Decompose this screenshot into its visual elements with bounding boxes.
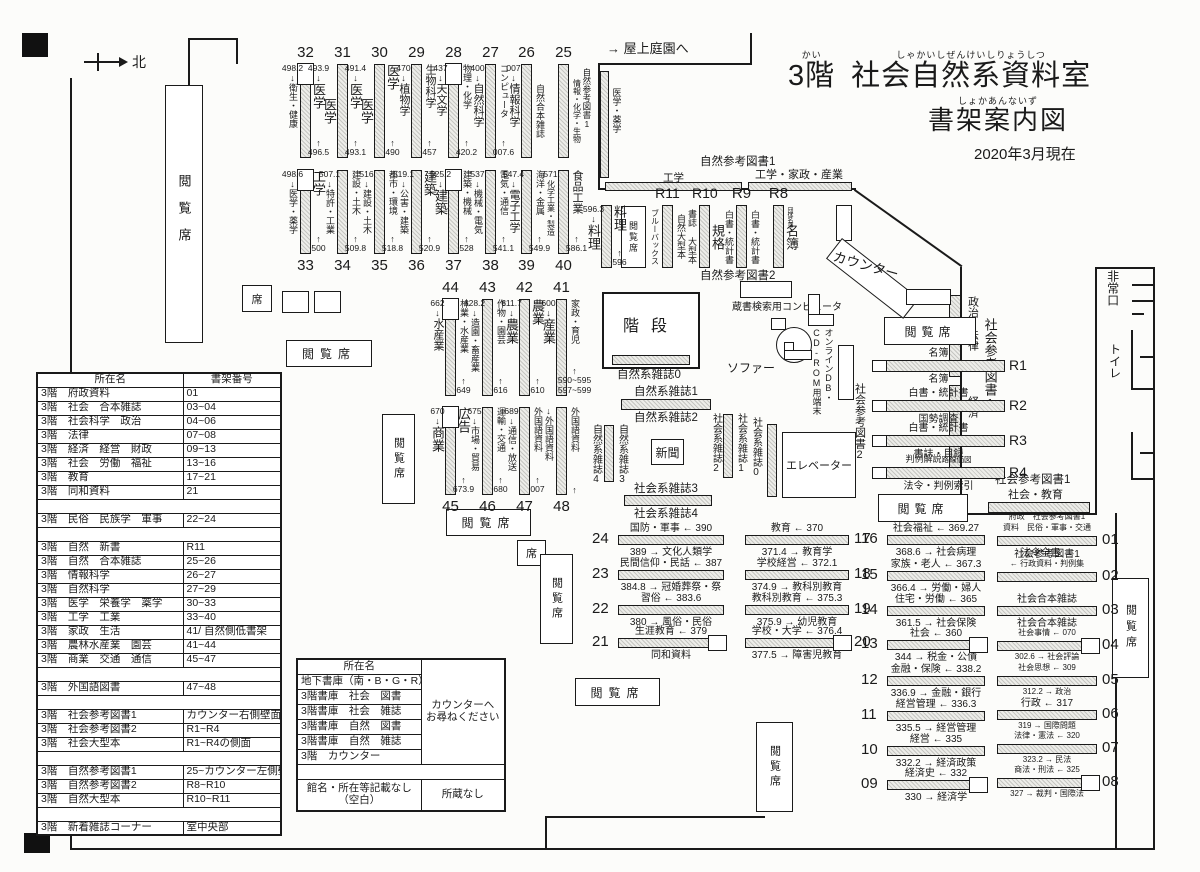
shelf-side-label: 白書・統計書 [722,205,735,268]
shelf-ryori: 596.3↓料理料理↑596 [587,205,626,268]
online-db-label: オンラインDB・ [823,328,832,423]
shelf-label: 368.6 → 社会病理 [877,547,995,558]
table-cell: 17~21 [183,471,281,485]
table-cell: 3階 自然参考図書1 [37,765,183,779]
table-cell: 室中央部 [183,821,281,835]
wall-shelf-section-label: 社会・教育 [1008,489,1063,502]
arrow-icon: ↓ [438,180,443,189]
title-sub: 書架案内図しょかあんないず [928,105,1068,135]
subject-label: 料理 [613,205,626,231]
subject-label: 造園・畜産業 [470,318,479,372]
shelf-label: 習俗 ← 383.6 [608,593,734,604]
list-shelf-06 [997,710,1097,720]
title-name: 社会自然系資料室しゃかいしぜんけいしりょうしつ [851,50,1091,94]
subject-label: 市場・貿易 [470,426,479,471]
table-box [282,291,309,313]
list-shelf-12 [887,676,985,686]
list-shelf-15 [887,571,985,581]
table-cell: 41/ 自然側低書架 [183,625,281,639]
scan-mark [24,833,50,853]
list-shelf-22 [618,605,724,615]
shelf-side-label: 600↓産業 [542,299,555,396]
magazine-shelf-label: 社会系雑誌0 [750,417,761,501]
table-cell: 21 [183,485,281,499]
list-shelf-16 [887,535,985,545]
shelf-number: 31 [330,45,355,60]
arrow-icon: ↓ [472,417,477,426]
shelf-label: 344 → 税金・公債 [877,652,995,663]
wall-shelf-label: 自然参考図書1 [582,68,591,178]
shelf-side-label: 007↓情報科学 [507,64,520,158]
online-db-label: CD-ROM用端末 [811,328,820,423]
ref-shelf-R4 [872,467,1005,479]
reading-seats-label: 閲覧席 [767,745,783,790]
magazine-shelf-label: 社会系雑誌2 [710,413,721,479]
shelf-35: 35516↓建設・土木都市・環境↑518.8 [360,170,399,254]
shelf-label: 路線価図 [942,455,972,464]
online-db-terminal [838,345,854,400]
table-cell: 3階 家政 生活 [37,625,183,639]
shelf-label: 312.2 → 政治 [987,688,1107,697]
shelf-45: 45670↓商業広告↑673.9 [431,407,470,495]
table-cell: R8~R10 [183,779,281,793]
wall-roof-garden [750,33,752,65]
wall-shelf-section-label: 工学 [663,172,684,184]
arrow-icon: ↓ [435,309,440,318]
subject-label: 農業 [505,318,518,344]
counter-side-table [836,205,852,241]
reading-seats-label: 閲覧席 [549,577,565,622]
arrow-icon: ↓ [509,309,514,318]
table-note-line: カウンターへ [431,699,494,711]
shelf-number: 44 [438,280,463,295]
subject-label: 食品工業 [571,170,582,214]
shelf-side-label: 437↓天文学 [434,64,447,158]
shelf-end-panel [969,777,988,793]
table-cell: 3階 医学 栄養学 薬学 [37,597,183,611]
title-name-text: 社会自然系資料室 [851,60,1091,92]
shelf-side-label: 情報・化学・生物 [570,64,583,158]
shelf-side-label: 571化学工業・製造 [544,170,557,254]
shelf-number: 27 [478,45,503,60]
newspaper-box: 新聞 [651,439,684,465]
list-number: 10 [861,742,878,757]
newspaper-label: 新聞 [655,444,679,461]
reading-seats-box: 閲覧席 [1112,578,1149,678]
list-shelf-17 [745,535,849,545]
shelf-number: 48 [549,499,574,514]
reading-seats-label: 閲覧席 [904,323,955,340]
shelf-bar [556,407,567,495]
opac-label: 蔵書検索用コンピュータ [732,302,842,314]
wall-topleft [236,38,238,64]
shelf-label: 教育 ← 370 [735,523,859,534]
list-shelf-19 [745,605,849,615]
shelf-end-panel [1081,775,1100,791]
shelf-R10: R10書誌 大型本規格 [685,205,724,268]
reading-seats-box: 閲覧席 [540,554,573,644]
subject-label: 植物学 [398,83,409,116]
shelf-bar [521,64,532,158]
table-cell: 3階 自然 合本雑誌 [37,555,183,569]
arrow-icon: ↓ [546,407,551,416]
list-shelf-07 [997,744,1097,754]
shelf-number: 32 [293,45,318,60]
shelf-label: 府政 社会参考図書1 [987,513,1107,522]
shelf-label: 327 → 裁判・国際法 [987,790,1107,799]
shelf-label: 323.2 → 民法 [987,756,1107,765]
table-cell: 3階 外国語図書 [37,681,183,695]
shelf-side-label: 医学 [323,64,336,158]
shelf-label: 判例解説路線価図 [872,455,1005,465]
shelf-number: 41 [549,280,574,295]
shelf-side-label: 507.1↓特許・工業 [323,170,336,254]
reading-seats-box: 閲覧席 [884,317,976,345]
arrow-icon: ↓ [290,74,295,83]
list-shelf-11 [887,711,985,721]
wall-corridor [1095,267,1097,515]
floor-map-page: 北 3階かい 社会自然系資料室しゃかいしぜんけいしりょうしつ 書架案内図しょかあ… [0,0,1200,872]
shelf-side-label: 525.2↓建築 [434,170,447,254]
shelf-label: 302.6 → 社会評論 [987,653,1107,662]
title-floor-ruby: かい [788,50,835,60]
shelf-bar [411,64,422,158]
wall-shelf-label: 社会参考図書1 [995,474,1070,487]
shelf-label: 名簿 [872,374,1005,385]
list-number: 01 [1102,532,1119,547]
shelf-number: 37 [441,258,466,273]
table-cell: 41~44 [183,639,281,653]
shelf-label: 金融・保険 ← 338.2 [877,664,995,675]
shelf-30: 30医学医学↑490 [360,64,399,158]
table-cell: 3階 工学 工業 [37,611,183,625]
table-footer: 館名・所在等記載なし（空白） [297,779,421,811]
shelf-number: 29 [404,45,429,60]
table-cell: カウンター右側壁面~02 [183,709,281,723]
elevator-label: エレベーター [786,457,852,473]
shelf-side-label: 596.3↓料理 [587,205,600,268]
magazine-shelf-soc3-4 [624,495,712,506]
shelf-R9: R9白書・統計書白書・統計書 [722,205,761,268]
wall-shelf-nat-ref1-home [748,182,852,191]
table-cell: 33~40 [183,611,281,625]
shelf-bar [374,64,385,158]
shelf-bar [485,170,496,254]
shelf-number: R8 [766,186,791,201]
list-number: 23 [592,566,609,581]
subject-label: 医学 [360,98,373,124]
shelf-label: 商法・刑法 ← 325 [987,766,1107,775]
table-row: 3階書庫 自然 図書 [297,719,421,734]
magazine-shelf-label: 自然系雑誌2 [634,412,698,425]
subject-label: 医学 [323,98,336,124]
shelf-34: 34507.1↓特許・工業建設・土木↑509.8 [323,170,362,254]
table-note: カウンターへお尋ねください [421,659,505,764]
table-header: 所在名 [37,373,183,387]
table-cell: 3階 自然参考図書2 [37,779,183,793]
arrow-icon: ↓ [401,74,406,83]
arrow-icon: ↓ [511,74,516,83]
subject-label: 料理 [587,224,600,250]
shelf-side-label: 498.6↓医学・薬学 [286,170,299,254]
toilet-fixture [1140,356,1153,358]
compass-line [84,61,120,63]
seat-label: 席 [252,291,263,307]
subject-label: 医学・薬学 [288,189,297,234]
list-number: 22 [592,601,609,616]
wall-shelf-label: 社会参考図書2 [853,383,865,487]
shelf-label: 336.9 → 金融・銀行 [877,688,995,699]
wall-shelf-section-label: 医学・薬学 [611,88,620,168]
shelf-label: 学校経営 ← 372.1 [735,558,859,569]
table-gap [37,807,281,821]
toilet-label: トイレ [1108,343,1121,397]
list-number: 06 [1102,706,1119,721]
subject-label: 商業 [431,426,444,452]
shelf-side-label: 家政・育児↑590~595597~599 [568,299,581,396]
reading-seats-box: 閲覧席 [165,85,203,343]
magazine-shelf-label: 社会系雑誌4 [634,508,698,521]
shelf-side-label: 470↓植物学 [397,64,410,158]
opac-desk [740,281,792,298]
list-number: 07 [1102,740,1119,755]
list-number: 16 [861,531,878,546]
shelf-side-label: 675↓市場・貿易 [468,407,481,495]
list-number: 05 [1102,672,1119,687]
shelf-end-panel [969,637,988,653]
roof-garden-label: → 屋上庭園へ [607,42,689,57]
magazine-shelf-nat1-2 [621,399,711,410]
table-cell: 3階 教育 [37,471,183,485]
shelf-number: 46 [475,499,500,514]
arrow-icon: ↓ [438,74,443,83]
list-number: 24 [592,531,609,546]
toilet-fixture [1132,300,1153,302]
wall-corridor [1095,267,1155,269]
shelf-label: 330 → 経済学 [877,792,995,803]
subject-label: ブルーバックス [651,209,659,265]
page-title: 3階かい 社会自然系資料室しゃかいしぜんけいしりょうしつ 書架案内図しょかあんな… [788,50,1192,164]
subject-label: 書誌 大型本 [687,209,696,264]
subject-label: 名簿 [785,224,798,250]
shelf-end-panel [1081,638,1100,654]
table-cell: 3階 情報科学 [37,569,183,583]
table-box [314,291,341,313]
legend-table-main: 所在名 書架番号 3階 府政資料013階 社会 合本雑誌03~043階 社会科学… [36,372,282,836]
compass-label: 北 [132,54,146,70]
subject-label: 自然合本雑誌 [535,84,544,138]
shelf-label: 377.5 → 障害児教育 [735,650,859,661]
shelf-label: 資料 民俗・軍事・交通 [987,524,1107,533]
table-header: 所在名 [297,659,421,674]
shelf-label: 教科別教育 ← 375.3 [735,593,859,604]
shelf-number: 34 [330,258,355,273]
shelf-label: 社会思想 ← 309 [987,664,1107,673]
subject-label: 情報・化学・生物 [573,79,581,143]
shelf-bar [558,170,569,254]
shelf-46: 46675↓市場・貿易運輸・交通↑680 [468,407,507,495]
table-cell: 3階 同和資料 [37,485,183,499]
list-number: 15 [861,567,878,582]
shelf-side-label: 670↓商業 [431,407,444,495]
subject-label: 天文学 [435,83,446,116]
shelf-bar [519,299,530,396]
table-cell: R1~R4 [183,723,281,737]
shelf-label: 家族・老人 ← 367.3 [877,559,995,570]
shelf-29: 29470↓植物学生物科学↑457 [397,64,436,158]
shelf-40: 40571化学工業・製造食品工業↑586.1 [544,170,583,254]
table-cell: 45~47 [183,653,281,667]
wall-topleft [188,38,238,40]
list-number: 02 [1102,568,1119,583]
shelf-label: 住宅・労働 ← 365 [877,594,995,605]
arrow-icon: ↓ [435,417,440,426]
counter-side-table [906,289,951,305]
title-floor-text: 3階 [788,60,835,92]
subject-label: 建築 [434,189,447,215]
arrow-icon: ↓ [327,180,332,189]
ref-shelf-R1 [872,360,1005,372]
subject-label: 機械・電気 [473,189,482,234]
shelf-label: 白書・統計書 [872,423,1005,434]
shelf-44: 44662↓水産業林業・水産業↑649 [431,299,470,396]
shelf-bar [337,64,348,158]
shelf-side-label: 519.1↓公害・建築 [397,170,410,254]
title-sub-ruby: しょかあんないず [928,96,1068,106]
legend-table-counter: 所在名 カウンターへお尋ねください 地下書庫（南・B・G・R） 3階書庫 社会 … [296,658,506,812]
reading-seats-box: 閲覧席 [575,678,660,706]
table-cell: 3階 法律 [37,429,183,443]
table-note-line: お尋ねください [426,711,500,723]
shelf-number: R11 [655,186,680,200]
magazine-shelf-soc1-2 [723,414,733,478]
shelf-side-label: 689↓通信・放送 [505,407,518,495]
arrow-icon: ↑ [572,486,577,495]
table-cell: 3階 社会 合本雑誌 [37,401,183,415]
shelf-side-label: 547.4↓電子工学 [507,170,520,254]
list-number: 12 [861,672,878,687]
subject-label: 外国語資料 [533,407,542,452]
table-row: 3階 カウンター [297,749,421,764]
wall-bottom [70,848,1155,850]
call-number: 571 [543,170,557,180]
shelf-label: 社会合本雑誌 [987,594,1107,605]
shelf-42: 42611.7↓農業農業↑610 [505,299,544,396]
table-cell: 3階 農林水産業 園芸 [37,639,183,653]
wall-shelf-label: 自然参考図書1 [700,156,775,169]
reading-seats-label: 閲覧席 [302,345,356,362]
shelf-side-label: 400↓自然科学 [471,64,484,158]
table-row: 3階書庫 社会 図書 [297,689,421,704]
shelf-number: 25 [551,45,576,60]
wall-shelf-section-label: 工学・家政・産業 [755,169,843,182]
shelf-side-label: 628.2↓造園・畜産業 [468,299,481,396]
wall-roof-garden [598,63,752,65]
ref-shelf-R2 [872,400,1005,412]
table-cell: R1~R4の側面 [183,737,281,751]
magazine-shelf-soc0 [767,424,777,497]
table-cell: 25~カウンター左側壁面 [183,765,281,779]
shelf-bar [773,205,784,268]
table-cell: 47~48 [183,681,281,695]
wall-bottom-center [545,816,547,850]
shelf-label: 白書・統計書 [872,388,1005,399]
table-footer: 所蔵なし [421,779,505,811]
shelf-bar [662,205,673,268]
magazine-shelf-label: 自然系雑誌3 [616,424,627,486]
shelf-38: 38537↓機械・電気電気・通信↑541.1 [471,170,510,254]
reading-seats-label: 閲覧席 [627,221,640,254]
shelf-number: 30 [367,45,392,60]
subject-label: 建設・土木 [362,189,371,234]
table-cell: 3階 社会参考図書1 [37,709,183,723]
toilet-fixture [1131,330,1133,390]
magazine-shelf-label: 自然系雑誌4 [590,424,601,486]
shelf-number: 35 [367,258,392,273]
shelf-25: 25情報・化学・生物 [544,64,583,158]
list-number: 11 [861,707,877,722]
arrow-icon: ↓ [353,74,358,83]
subject-label: 情報科学 [508,83,519,127]
list-shelf-02 [997,572,1097,582]
shelf-26: 26007↓情報科学自然合本雑誌 [507,64,546,158]
table-cell: 04~06 [183,415,281,429]
table-cell: 3階 社会参考図書2 [37,723,183,737]
arrow-icon: ↓ [475,74,480,83]
table-cell: R11 [183,541,281,555]
toilet-fixture [1132,284,1153,286]
shelf-number: R4 [1009,465,1027,479]
table-gap [37,751,281,765]
seat-label: 席 [526,545,537,561]
shelf-bar [519,407,530,495]
toilet-fixture [1131,432,1133,480]
subject-label: 水産業 [432,318,443,351]
reading-seats-label: 閲覧席 [461,514,515,531]
list-shelf-10 [887,746,985,756]
subject-label: 公害・建築 [399,189,408,234]
table-cell: 30~33 [183,597,281,611]
list-shelf-05 [997,676,1097,686]
shelf-27: 27400↓自然科学コンピュータ↑007.6 [471,64,510,158]
subject-label: 特許・工業 [325,189,334,234]
shelf-label: 国防・軍事 ← 390 [608,523,734,534]
arrow-icon: ↓ [290,180,295,189]
scan-mark [22,33,48,57]
list-shelf-14 [887,606,985,616]
shelf-label: 319 → 国際問題 [987,722,1107,731]
reading-seats-label: 閲覧席 [1123,604,1139,652]
shelf-side-label: 611.7↓農業 [505,299,518,396]
table-row: 3階書庫 自然 雑誌 [297,734,421,749]
table-cell: 3階 商業 交通 通信 [37,653,183,667]
arrow-icon: ↓ [591,215,596,224]
shelf-label: 384.8 → 冠婚葬祭・祭 [608,582,734,593]
shelf-36: 36519.1↓公害・建築建築↑520.9 [397,170,436,254]
shelf-number: 47 [512,499,537,514]
shelf-side-label: ↓外国語資料 [542,407,555,495]
shelf-end-panel [708,635,727,651]
reading-seats-box: 閲覧席 [878,494,968,522]
seat-box: 席 [242,285,272,312]
magazine-shelf-nat0 [612,355,690,365]
wall-topleft [188,38,190,86]
table-footer-line: （空白） [338,794,380,806]
shelf-label: 同和資料 [608,650,734,661]
shelf-number: R9 [729,186,754,201]
reading-seats-label: 閲覧席 [175,174,194,255]
stairs-label: 階段 [623,312,679,336]
